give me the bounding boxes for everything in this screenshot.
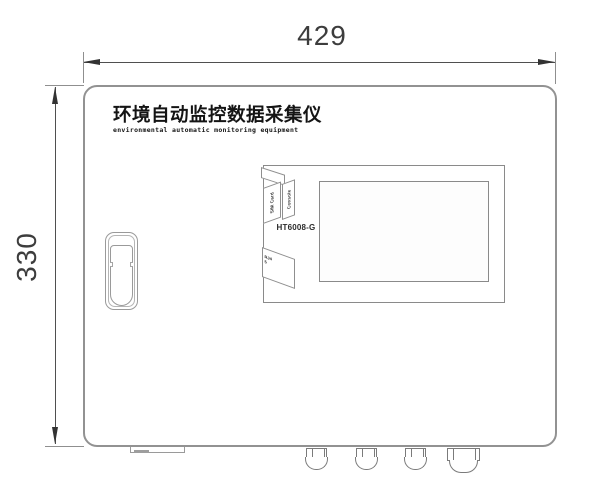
height-dimension-label: 330 bbox=[11, 227, 43, 287]
width-dimension-line bbox=[83, 62, 555, 63]
extension-line-top-left bbox=[83, 52, 84, 83]
device-subtitle: environmental automatic monitoring equip… bbox=[113, 126, 298, 134]
console-port-tag: Console bbox=[282, 179, 295, 220]
cable-gland-2 bbox=[355, 448, 378, 473]
enclosure-outline: 环境自动监控数据采集仪 environmental automatic moni… bbox=[83, 85, 557, 447]
width-dimension-label: 429 bbox=[282, 20, 362, 52]
gland-dome bbox=[305, 457, 328, 470]
lock-notch-right bbox=[130, 262, 133, 267]
console-port-tag-label: Console bbox=[286, 189, 291, 210]
mounting-bracket bbox=[130, 447, 185, 453]
network-port-label: RJ45 bbox=[265, 255, 274, 268]
cable-gland-4-large bbox=[447, 448, 480, 475]
gland-dome bbox=[449, 460, 478, 473]
dimension-arrowhead-left-icon bbox=[83, 59, 100, 65]
mounting-bracket-tab bbox=[134, 450, 149, 453]
gland-dome bbox=[355, 457, 378, 470]
display-panel: HT6008-G SIM Card Console RJ45 bbox=[263, 165, 505, 303]
height-dimension-line bbox=[55, 87, 56, 444]
extension-line-left-bottom bbox=[45, 446, 84, 447]
gland-dome bbox=[404, 457, 427, 470]
extension-line-top-right bbox=[555, 52, 556, 84]
lock-notch-left bbox=[110, 262, 113, 267]
extension-line-left-top bbox=[45, 85, 84, 86]
cable-gland-1 bbox=[305, 448, 328, 473]
device-title: 环境自动监控数据采集仪 bbox=[113, 101, 322, 127]
cable-gland-3 bbox=[404, 448, 427, 473]
network-port-cover-flap: RJ45 bbox=[262, 247, 295, 289]
dimension-arrowhead-down-icon bbox=[52, 427, 58, 444]
dimension-arrowhead-up-icon bbox=[52, 87, 58, 104]
sim-card-tag-label: SIM Card bbox=[270, 191, 275, 214]
lock-handle bbox=[105, 232, 138, 310]
model-label: HT6008-G bbox=[274, 223, 318, 232]
lock-handle-grip bbox=[110, 245, 133, 306]
sim-card-tag: SIM Card bbox=[263, 181, 281, 224]
technical-drawing-canvas: 429 330 环境自动监控数据采集仪 environmental automa… bbox=[0, 0, 600, 490]
lcd-screen bbox=[319, 181, 489, 282]
dimension-arrowhead-right-icon bbox=[538, 59, 555, 65]
